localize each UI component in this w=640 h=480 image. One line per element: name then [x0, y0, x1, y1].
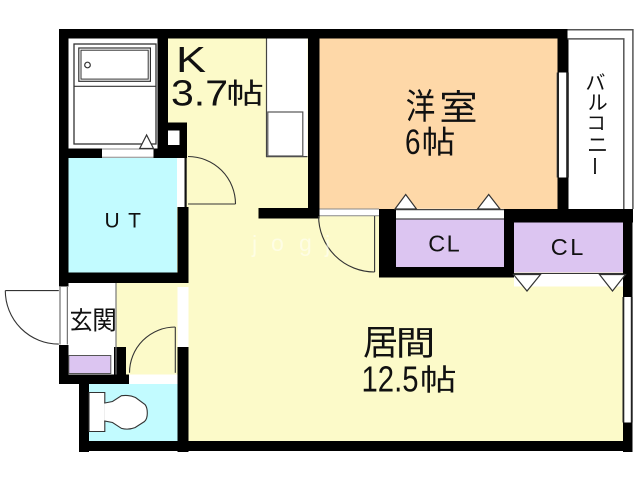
svg-text:6: 6	[405, 123, 421, 162]
svg-text:g: g	[299, 230, 312, 256]
svg-text:CL: CL	[428, 231, 461, 257]
svg-text:UT: UT	[105, 210, 150, 233]
svg-text:12.5: 12.5	[362, 359, 419, 400]
svg-text:o: o	[271, 230, 284, 256]
svg-text:j: j	[251, 231, 257, 257]
svg-text:CL: CL	[551, 234, 586, 260]
svg-text:j: j	[324, 231, 330, 257]
svg-text:3.7: 3.7	[171, 72, 228, 113]
